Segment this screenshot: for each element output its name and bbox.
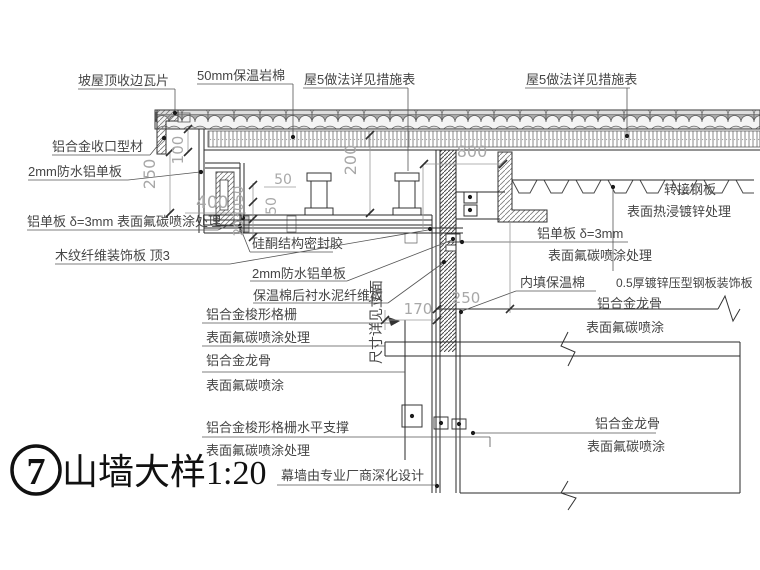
label-hot-dip-galvanized: 表面热浸镀锌处理: [627, 204, 731, 219]
label-silicone-sealant: 硅酮结构密封胶: [252, 236, 343, 251]
label-spray-right-upper: 表面氟碳喷涂: [586, 320, 664, 335]
dim-400: 400: [196, 193, 228, 213]
label-waterproof-alum-left: 2mm防水铝单板: [28, 164, 122, 179]
label-steel-deco-panel: 0.5厚镀锌压型钢板装饰板: [616, 276, 753, 290]
label-alum-keel-left-finish: 表面氟碳喷涂: [206, 378, 284, 393]
label-see-elevation: 尺寸详见立面: [368, 280, 384, 364]
dim-20: 20: [232, 220, 247, 237]
annotation-labels: 坡屋顶收边瓦片 50mm保温岩棉 屋5做法详见措施表 屋5做法详见措施表 铝合金…: [27, 68, 753, 483]
curtain-wall-mullion: [440, 150, 477, 352]
label-alum-panel-left: 铝单板 δ=3mm 表面氟碳喷涂处理: [27, 214, 221, 229]
label-keel-right-upper: 铝合金龙骨: [597, 296, 662, 311]
panel-joint: [287, 216, 296, 232]
hanger2-base: [393, 208, 421, 215]
detail-number: 7: [27, 451, 46, 493]
dim-50-b: 50: [264, 197, 280, 215]
label-transfer-steel-plate: 转接钢板: [664, 182, 716, 197]
label-rock-wool: 50mm保温岩棉: [197, 68, 285, 83]
corrugated-steel-panel: [512, 180, 754, 193]
dim-100: 100: [169, 136, 187, 165]
dim-170: 170: [404, 300, 433, 318]
label-roof-tile-edge: 坡屋顶收边瓦片: [78, 73, 169, 88]
dim-200: 200: [341, 145, 360, 176]
cad-detail-sheet: 坡屋顶收边瓦片 50mm保温岩棉 屋5做法详见措施表 屋5做法详见措施表 铝合金…: [0, 0, 760, 570]
label-roof5-left: 屋5做法详见措施表: [304, 72, 415, 87]
detail-scale: 1:20: [206, 455, 266, 492]
label-grille-horizontal-support: 铝合金梭形格栅水平支撑: [206, 420, 349, 435]
hanger1-body: [311, 181, 327, 208]
label-roof5-right: 屋5做法详见措施表: [526, 72, 637, 87]
label-keel-right-lower: 铝合金龙骨: [595, 416, 660, 431]
label-spray-right-lower: 表面氟碳喷涂: [587, 439, 665, 454]
label-infill-insulation: 内填保温棉: [520, 275, 585, 290]
dim-250-eave: 250: [140, 159, 159, 190]
dim-30: 30: [232, 203, 247, 220]
dim-50-c: 50: [232, 186, 247, 203]
label-alum-closing: 铝合金收口型材: [52, 139, 143, 154]
roof-tile-band: [155, 110, 760, 129]
label-fluorocarbon-right: 表面氟碳喷涂处理: [548, 248, 652, 263]
detail-drawing-canvas: 坡屋顶收边瓦片 50mm保温岩棉 屋5做法详见措施表 屋5做法详见措施表 铝合金…: [0, 0, 760, 570]
label-cement-fiber-backing: 保温棉后衬水泥纤维板: [253, 288, 383, 303]
hanger1-cap: [307, 173, 331, 181]
label-alum-panel-right: 铝单板 δ=3mm: [537, 226, 623, 241]
label-spindle-grille: 铝合金梭形格栅: [206, 307, 297, 322]
detail-title: 山墙大样: [62, 452, 206, 492]
mullion-connector-b: [446, 245, 456, 251]
hanger2-body: [399, 181, 415, 208]
hanger2-cap: [395, 173, 419, 181]
dim-800: 800: [457, 142, 488, 161]
dim-50-a: 50: [274, 172, 292, 188]
grille-rule-arrowhead: [388, 317, 400, 326]
label-waterproof-alum-center: 2mm防水铝单板: [252, 266, 346, 281]
board-joint: [405, 233, 417, 243]
label-curtain-wall-note: 幕墙由专业厂商深化设计: [281, 468, 424, 483]
hanger1-base: [305, 208, 333, 215]
dim-250-grid: 250: [452, 289, 481, 307]
label-spindle-grille-finish: 表面氟碳喷涂处理: [206, 330, 310, 345]
label-wood-fiber-board: 木纹纤维装饰板 顶3: [55, 248, 170, 263]
label-alum-keel-left: 铝合金龙骨: [206, 353, 271, 368]
